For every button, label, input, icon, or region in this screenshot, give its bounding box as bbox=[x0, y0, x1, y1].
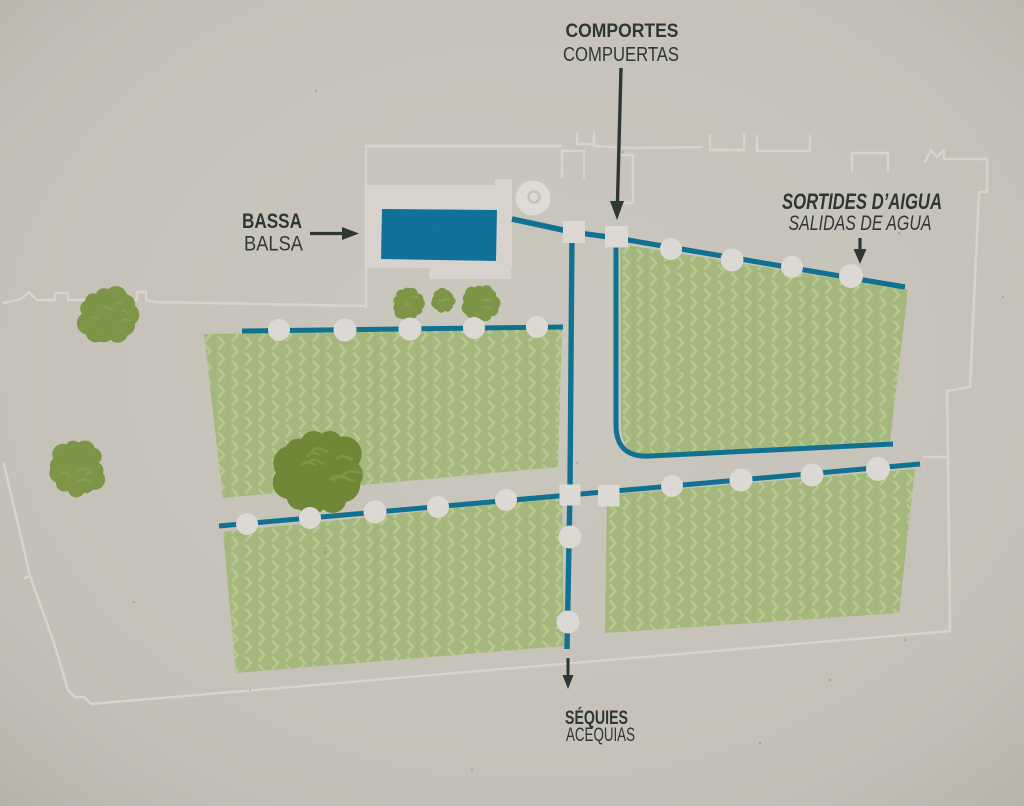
svg-text:SALIDAS DE AGUA: SALIDAS DE AGUA bbox=[789, 212, 932, 235]
svg-text:ACEQUIAS: ACEQUIAS bbox=[566, 725, 635, 746]
svg-text:COMPORTES: COMPORTES bbox=[566, 20, 679, 42]
svg-text:SORTIDES D’AIGUA: SORTIDES D’AIGUA bbox=[782, 189, 942, 214]
svg-text:BASSA: BASSA bbox=[242, 210, 302, 233]
svg-text:COMPUERTAS: COMPUERTAS bbox=[563, 44, 679, 66]
svg-text:BALSA: BALSA bbox=[244, 233, 303, 256]
